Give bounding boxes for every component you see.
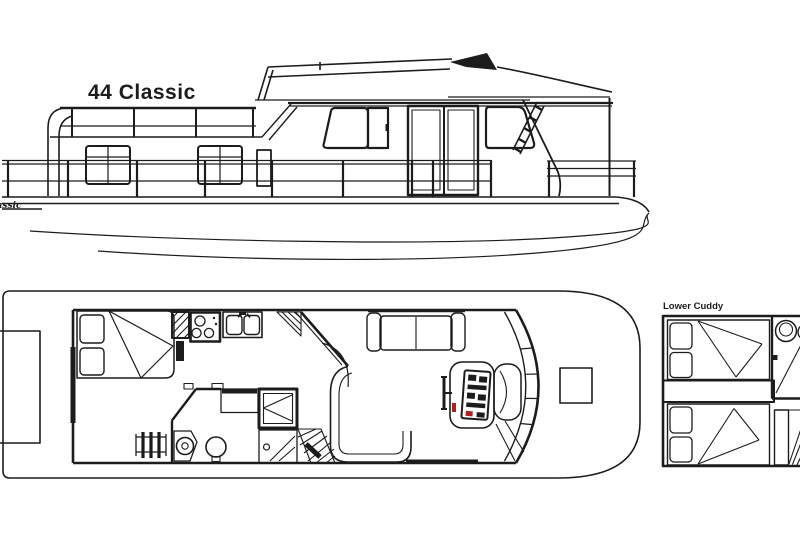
roof-detail-lines <box>255 97 612 106</box>
pillow <box>670 353 692 378</box>
gauge <box>467 392 475 399</box>
sink-basin <box>227 316 243 335</box>
window-latch <box>386 124 390 131</box>
captain-seat <box>494 364 521 420</box>
gauge <box>479 376 487 383</box>
upper-berth <box>668 320 770 380</box>
galley-angled-wall <box>301 312 348 366</box>
sliding-glass-door <box>408 106 478 195</box>
hull-logo-text: Classic <box>0 201 22 211</box>
hull-sheer-lines <box>2 197 649 212</box>
main-deck-floor-plan <box>0 291 640 478</box>
sofa-arm <box>367 313 381 351</box>
door-knob <box>264 444 270 450</box>
stove-knob <box>215 323 217 325</box>
shower-and-stairs <box>259 389 335 463</box>
bow-railing-posts <box>549 161 634 197</box>
sink-basin <box>244 316 260 335</box>
aft-cabin-roof <box>50 104 297 140</box>
passage-arc <box>322 343 348 387</box>
landing-strip <box>663 381 774 403</box>
side-elevation-view: 44 Classic Classic <box>0 53 649 259</box>
bow-railing-rails <box>547 161 636 176</box>
cabinet-dark <box>176 341 184 361</box>
burner <box>192 328 201 337</box>
deck-railing-rails <box>2 161 491 182</box>
lower-cuddy-label: Lower Cuddy <box>663 301 724 312</box>
window-mullions <box>86 146 242 184</box>
gauge <box>468 374 476 381</box>
counter-corner-hatch <box>277 312 301 336</box>
lower-berth <box>668 404 770 465</box>
canopy-hardtop <box>258 59 612 100</box>
swim-platform <box>0 331 40 443</box>
bathroom <box>136 384 258 464</box>
floor-drain <box>773 355 778 360</box>
compartment-door-swing <box>270 436 295 461</box>
sofa <box>367 312 465 352</box>
sheet-fold <box>109 311 173 378</box>
gauge <box>467 384 486 390</box>
bow-windshield-outer <box>516 310 539 463</box>
basin-drain <box>182 443 188 449</box>
burner <box>195 316 205 326</box>
toilet-lid <box>780 323 793 336</box>
pillow <box>80 315 104 343</box>
seat-contour <box>500 371 507 413</box>
bow-step <box>560 368 592 403</box>
door-jamb <box>184 384 193 390</box>
throttle-lever <box>452 403 456 412</box>
bow-windshield-inner <box>505 312 526 461</box>
toilet <box>776 321 797 342</box>
dinette-bench <box>331 367 412 463</box>
sheet-fold <box>698 321 762 377</box>
vanity-cabinet-top <box>222 390 257 394</box>
instrument-cluster <box>461 370 490 420</box>
cuddy-stairs <box>775 410 800 465</box>
hull-bottom-curves <box>30 213 649 259</box>
galley-angled-wall-inner <box>296 312 343 365</box>
aft-cabin-windows <box>86 146 271 186</box>
pillow <box>670 323 692 349</box>
shower-door-fan <box>264 395 293 421</box>
stair-fan <box>789 410 800 465</box>
bench-outer <box>331 367 412 463</box>
door-swing <box>776 341 800 393</box>
cuddy-bathroom <box>772 316 800 399</box>
lower-compartment <box>259 430 297 463</box>
sheet-fold <box>698 409 759 465</box>
houseboat-brochure-drawing: 44 Classic Classic <box>0 0 800 533</box>
wash-basin <box>177 438 194 455</box>
warning-light <box>466 411 473 416</box>
pillow <box>670 407 692 433</box>
galley <box>172 312 348 388</box>
pilothouse-window-pane <box>368 108 388 148</box>
double-bed <box>77 311 174 378</box>
stair-rail <box>775 410 789 465</box>
door-pane <box>412 110 440 190</box>
sofa-arm <box>451 313 465 351</box>
line-drawing-canvas: 44 Classic Classic <box>0 0 800 533</box>
stairs-to-cuddy <box>298 429 335 463</box>
stove-knob <box>213 317 215 319</box>
lower-cuddy-plan: Lower Cuddy <box>663 301 800 466</box>
flybridge-rail-posts <box>72 108 253 137</box>
pilothouse-window <box>324 108 369 148</box>
gauge <box>476 412 484 418</box>
pillow <box>80 348 104 375</box>
toilet <box>206 437 226 457</box>
venturi-windshield <box>450 53 497 70</box>
roof-ladder-rungs <box>143 432 159 458</box>
pillow <box>670 437 692 462</box>
gauge <box>478 394 486 401</box>
burner <box>204 328 213 337</box>
model-title: 44 Classic <box>88 81 196 104</box>
gauge <box>466 402 485 408</box>
deck-railing-posts <box>8 160 491 197</box>
door-pane <box>448 110 474 190</box>
